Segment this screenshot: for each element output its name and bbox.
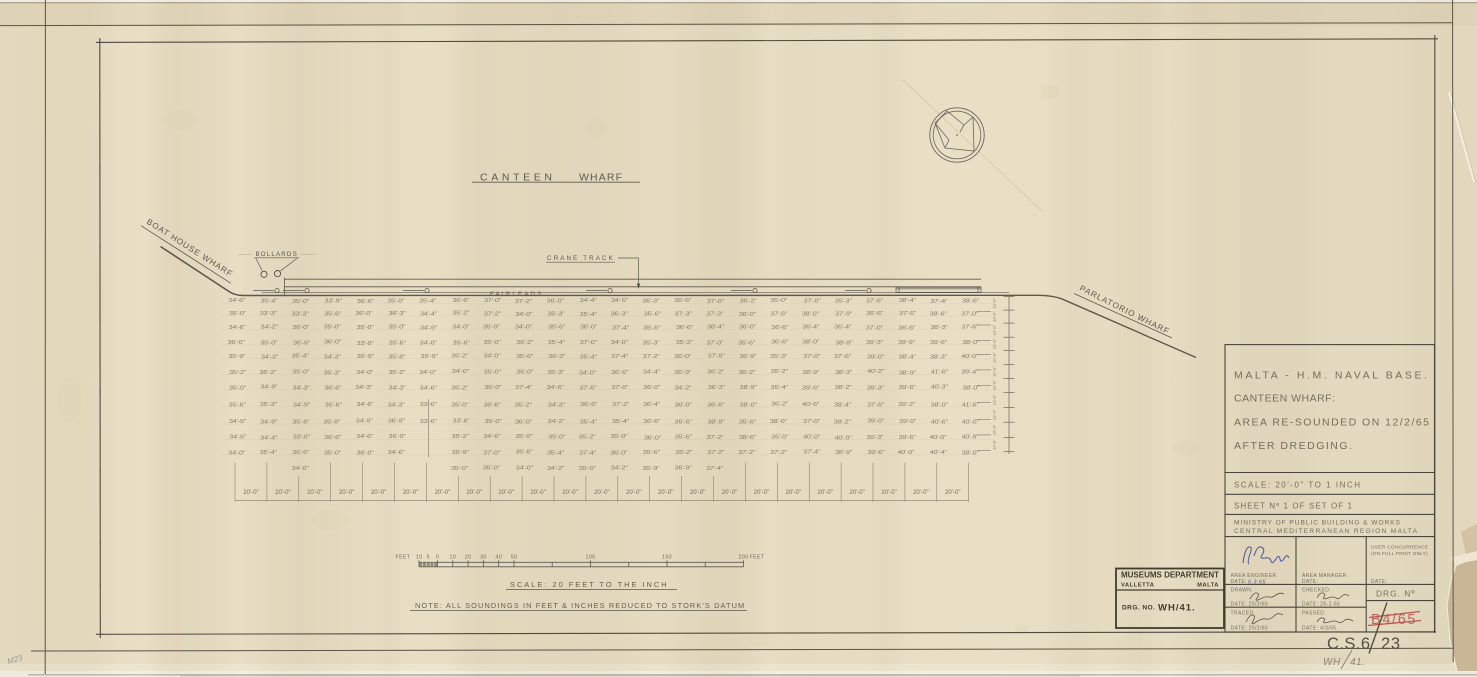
svg-text:5: 5	[427, 555, 430, 561]
svg-text:35'-6": 35'-6"	[644, 312, 661, 318]
svg-text:38'-4": 38'-4"	[707, 325, 724, 331]
svg-text:36'-3": 36'-3"	[548, 354, 565, 360]
svg-text:35'-3": 35'-3"	[547, 370, 564, 376]
svg-text:37'-2": 37'-2"	[770, 450, 787, 456]
svg-text:35'-0": 35'-0"	[357, 325, 374, 331]
svg-text:DATE:: DATE:	[1302, 579, 1318, 585]
svg-text:39'-6": 39'-6"	[899, 385, 916, 391]
svg-text:10'-0": 10'-0"	[992, 394, 997, 405]
svg-text:34'-2": 34'-2"	[261, 324, 278, 330]
svg-text:36'-0": 36'-0"	[675, 402, 692, 408]
svg-text:36'-0": 36'-0"	[292, 325, 309, 331]
svg-text:36'-0": 36'-0"	[228, 340, 245, 346]
svg-text:35'-6": 35'-6"	[739, 420, 756, 426]
svg-text:35'-4": 35'-4"	[548, 340, 565, 346]
svg-text:VALLETTA: VALLETTA	[1121, 583, 1155, 589]
svg-text:36'-6": 36'-6"	[643, 419, 660, 425]
svg-text:37'-3": 37'-3"	[706, 311, 723, 317]
svg-text:33'-0": 33'-0"	[293, 435, 310, 441]
svg-text:34'-6": 34'-6"	[388, 450, 405, 456]
svg-text:35'-2": 35'-2"	[675, 450, 692, 456]
svg-text:34'-3": 34'-3"	[388, 403, 405, 409]
svg-text:34'-0": 34'-0"	[292, 466, 309, 472]
svg-text:36'-3": 36'-3"	[389, 311, 406, 317]
svg-text:35'-4": 35'-4"	[261, 299, 278, 305]
svg-text:34'-6": 34'-6"	[483, 434, 500, 440]
svg-text:20'-0": 20'-0"	[498, 489, 514, 496]
svg-text:37'-9": 37'-9"	[708, 354, 725, 360]
svg-text:35'-9": 35'-9"	[452, 450, 469, 456]
svg-text:20'-0": 20'-0"	[530, 489, 546, 496]
svg-text:37'-6": 37'-6"	[899, 311, 916, 317]
svg-text:20'-0": 20'-0"	[722, 489, 738, 496]
svg-text:35'-6": 35'-6"	[675, 435, 692, 441]
svg-text:35'-6": 35'-6"	[548, 325, 565, 331]
svg-text:36'-4": 36'-4"	[643, 402, 660, 408]
svg-text:38'-4": 38'-4"	[899, 298, 916, 304]
svg-text:34'-0": 34'-0"	[420, 341, 437, 347]
svg-text:DATE:: DATE:	[1231, 579, 1247, 585]
svg-text:10'-0": 10'-0"	[992, 424, 997, 435]
svg-text:10'-0": 10'-0"	[992, 366, 997, 377]
svg-text:38'-3": 38'-3"	[835, 370, 852, 376]
svg-text:36'-0": 36'-0"	[644, 435, 661, 441]
svg-text:35'-2": 35'-2"	[771, 369, 788, 375]
svg-text:37'-0": 37'-0"	[706, 340, 723, 346]
svg-text:35'-6": 35'-6"	[643, 325, 660, 331]
svg-text:DATE: 25/2/65: DATE: 25/2/65	[1231, 602, 1269, 608]
svg-text:33'-3": 33'-3"	[292, 312, 309, 318]
svg-text:36'-6": 36'-6"	[707, 403, 724, 409]
svg-text:36'-2": 36'-2"	[738, 370, 755, 376]
svg-text:35'-4": 35'-4"	[612, 419, 629, 425]
svg-text:34'-0": 34'-0"	[228, 451, 245, 457]
svg-text:34'-4": 34'-4"	[260, 435, 277, 441]
svg-text:34'-0": 34'-0"	[611, 340, 628, 346]
svg-text:36'-2": 36'-2"	[516, 340, 533, 346]
svg-text:20'-0": 20'-0"	[594, 489, 610, 496]
svg-text:37'-9": 37'-9"	[835, 312, 852, 318]
svg-text:10'-0": 10'-0"	[992, 297, 997, 308]
svg-text:35'-3": 35'-3"	[770, 354, 787, 360]
svg-text:37'-6": 37'-6"	[834, 354, 851, 360]
svg-text:34'-3": 34'-3"	[261, 355, 278, 361]
svg-text:38'-0": 38'-0"	[963, 386, 980, 392]
svg-text:34'-6": 34'-6"	[229, 435, 246, 441]
svg-text:36'-6": 36'-6"	[292, 450, 309, 456]
svg-text:36'-0": 36'-0"	[643, 385, 660, 391]
svg-text:38'-9": 38'-9"	[740, 385, 757, 391]
svg-text:35'-2": 35'-2"	[452, 311, 469, 317]
svg-text:37'-0": 37'-0"	[866, 325, 883, 331]
svg-text:33'-6": 33'-6"	[453, 419, 470, 425]
svg-text:CHECKED.: CHECKED.	[1302, 588, 1331, 594]
svg-text:35'-4": 35'-4"	[292, 354, 309, 360]
svg-text:34'-2": 34'-2"	[611, 465, 628, 471]
svg-text:10'-0": 10'-0"	[992, 409, 997, 420]
svg-text:20: 20	[465, 555, 472, 561]
svg-text:30: 30	[480, 555, 487, 561]
svg-text:39'-6": 39'-6"	[802, 386, 819, 392]
svg-text:36'-0": 36'-0"	[484, 385, 501, 391]
svg-text:35'-4": 35'-4"	[580, 355, 597, 361]
svg-text:36'-6": 36'-6"	[484, 403, 501, 409]
svg-text:36'-6": 36'-6"	[357, 299, 374, 305]
svg-text:39'-0": 39'-0"	[899, 419, 916, 425]
svg-text:FEET: FEET	[396, 555, 411, 561]
svg-text:38'-0": 38'-0"	[931, 403, 948, 409]
svg-text:35'-0": 35'-0"	[485, 419, 502, 425]
svg-text:35'-0": 35'-0"	[484, 369, 501, 375]
svg-text:38'-6": 38'-6"	[930, 312, 947, 318]
svg-text:20'-0": 20'-0"	[754, 489, 770, 496]
svg-text:37'-6": 37'-6"	[961, 324, 978, 330]
svg-text:34'-6": 34'-6"	[611, 298, 628, 304]
svg-text:35'-0": 35'-0"	[260, 340, 277, 346]
svg-text:35'-2": 35'-2"	[452, 434, 469, 440]
svg-text:36'-6": 36'-6"	[452, 298, 469, 304]
svg-text:35'-9": 35'-9"	[483, 325, 500, 331]
svg-text:36'-0": 36'-0"	[324, 340, 341, 346]
svg-text:37'-2": 37'-2"	[515, 299, 532, 305]
svg-text:34'-0": 34'-0"	[515, 324, 532, 330]
svg-text:20'-0": 20'-0"	[658, 489, 674, 496]
svg-text:35'-4": 35'-4"	[580, 312, 597, 318]
svg-text:36'-0": 36'-0"	[355, 311, 372, 317]
svg-text:35'-3": 35'-3"	[548, 311, 565, 317]
svg-text:35'-0": 35'-0"	[388, 324, 405, 330]
svg-text:DATE: 25/2/65: DATE: 25/2/65	[1231, 626, 1269, 632]
svg-text:36'-0": 36'-0"	[739, 312, 756, 318]
svg-text:36'-3": 36'-3"	[611, 312, 628, 318]
svg-text:35'-2": 35'-2"	[388, 370, 405, 376]
svg-text:37'-2": 37'-2"	[707, 450, 724, 456]
svg-text:AREA MANAGER: AREA MANAGER	[1302, 573, 1347, 579]
svg-text:35'-0": 35'-0"	[324, 324, 341, 330]
svg-text:38'-2": 38'-2"	[834, 419, 851, 425]
svg-text:37'-2": 37'-2"	[707, 435, 724, 441]
svg-text:35'-6": 35'-6"	[388, 354, 405, 360]
svg-text:36'-2": 36'-2"	[260, 370, 277, 376]
svg-text:37'-0": 37'-0"	[707, 299, 724, 305]
svg-text:34'-0": 34'-0"	[356, 370, 373, 376]
svg-text:40'-3": 40'-3"	[931, 385, 948, 391]
svg-text:37'-4": 37'-4"	[612, 325, 629, 331]
svg-text:37'-0": 37'-0"	[484, 298, 501, 304]
svg-text:SCALE: 20'-0" TO 1 INCH: SCALE: 20'-0" TO 1 INCH	[1234, 481, 1360, 490]
svg-text:35'-3": 35'-3"	[835, 298, 852, 304]
svg-text:39'-0": 39'-0"	[867, 354, 884, 360]
svg-text:20'-0": 20'-0"	[307, 489, 323, 496]
svg-text:34'-6": 34'-6"	[420, 385, 437, 391]
svg-text:35'-2": 35'-2"	[451, 354, 468, 360]
svg-text:36'-2": 36'-2"	[707, 369, 724, 375]
svg-text:35'-3": 35'-3"	[643, 341, 660, 347]
svg-text:35'-4": 35'-4"	[260, 450, 277, 456]
svg-text:35'-0": 35'-0"	[515, 434, 532, 440]
svg-text:38'-0": 38'-0"	[802, 340, 819, 346]
svg-text:37'-2": 37'-2"	[738, 450, 755, 456]
svg-text:34'-9": 34'-9"	[261, 385, 278, 391]
svg-text:35'-0": 35'-0"	[387, 299, 404, 305]
svg-text:36'-9": 36'-9"	[739, 354, 756, 360]
svg-text:37'-0": 37'-0"	[961, 312, 978, 318]
svg-text:36'-4": 36'-4"	[834, 324, 851, 330]
svg-text:36'-6": 36'-6"	[324, 386, 341, 392]
svg-text:MALTA - H.M. NAVAL BASE.: MALTA - H.M. NAVAL BASE.	[1234, 370, 1427, 382]
svg-text:38'-3": 38'-3"	[931, 325, 948, 331]
svg-text:36'-6": 36'-6"	[771, 325, 788, 331]
svg-text:150: 150	[662, 555, 672, 561]
svg-text:20'-0": 20'-0"	[817, 489, 833, 496]
svg-text:40'-0": 40'-0"	[803, 434, 820, 440]
svg-text:35'-0": 35'-0"	[451, 403, 468, 409]
svg-text:39'-6": 39'-6"	[930, 340, 947, 346]
svg-text:PASSED.: PASSED.	[1302, 611, 1326, 617]
svg-text:40'-0": 40'-0"	[961, 354, 978, 360]
svg-text:34'-0": 34'-0"	[484, 354, 501, 360]
svg-text:WH: WH	[1323, 657, 1341, 668]
svg-text:37'-4": 37'-4"	[930, 299, 947, 305]
svg-text:36'-0": 36'-0"	[580, 324, 597, 330]
svg-text:40'-6": 40'-6"	[931, 419, 948, 425]
svg-text:NOTE: ALL SOUNDINGS IN FEET &: NOTE: ALL SOUNDINGS IN FEET & INCHES RED…	[415, 601, 745, 610]
svg-text:20'-0": 20'-0"	[690, 489, 706, 496]
svg-text:AFTER DREDGING.: AFTER DREDGING.	[1234, 440, 1352, 452]
svg-text:35'-3": 35'-3"	[324, 370, 341, 376]
svg-text:SHEET Nº 1 OF SET OF 1: SHEET Nº 1 OF SET OF 1	[1234, 502, 1353, 511]
svg-text:37'-2": 37'-2"	[643, 354, 660, 360]
svg-text:10'-0": 10'-0"	[992, 324, 997, 335]
svg-text:37'-0": 37'-0"	[803, 354, 820, 360]
svg-text:DRAWN,: DRAWN,	[1231, 588, 1254, 594]
svg-text:36'-4": 36'-4"	[802, 325, 819, 331]
svg-text:34'-0": 34'-0"	[452, 369, 469, 375]
svg-text:39'-2": 39'-2"	[898, 402, 915, 408]
svg-text:35'-6": 35'-6"	[453, 341, 470, 347]
svg-text:38'-4": 38'-4"	[899, 355, 916, 361]
svg-text:34'-3": 34'-3"	[355, 385, 372, 391]
svg-text:35'-0": 35'-0"	[548, 435, 565, 441]
svg-text:34'-9": 34'-9"	[293, 402, 310, 408]
svg-text:34'-0": 34'-0"	[515, 312, 532, 318]
svg-text:6.3.65: 6.3.65	[1248, 579, 1266, 585]
svg-text:35'-0": 35'-0"	[324, 450, 341, 456]
svg-text:35'-6": 35'-6"	[389, 340, 406, 346]
svg-text:20'-0": 20'-0"	[562, 489, 578, 496]
svg-text:WH/41.: WH/41.	[1158, 603, 1196, 614]
svg-text:34'-2": 34'-2"	[548, 419, 565, 425]
svg-text:37'-2": 37'-2"	[484, 311, 501, 317]
svg-text:C.S.6: C.S.6	[1327, 635, 1371, 653]
svg-text:35'-9": 35'-9"	[323, 419, 340, 425]
svg-text:38'-9": 38'-9"	[899, 370, 916, 376]
svg-text:37'-0": 37'-0"	[611, 385, 628, 391]
svg-text:SCALE: 20 FEET TO THE INCH: SCALE: 20 FEET TO THE INCH	[510, 580, 668, 589]
svg-text:35'-2": 35'-2"	[515, 403, 532, 409]
svg-text:20'-0": 20'-0"	[339, 489, 355, 496]
svg-text:37'-6": 37'-6"	[770, 311, 787, 317]
svg-text:35'-9": 35'-9"	[643, 466, 660, 472]
svg-text:37'-2": 37'-2"	[612, 402, 629, 408]
svg-text:34'-6": 34'-6"	[229, 325, 246, 331]
svg-text:36'-9": 36'-9"	[388, 419, 405, 425]
svg-text:37'-6": 37'-6"	[867, 403, 884, 409]
svg-text:38'-0": 38'-0"	[740, 403, 757, 409]
svg-text:36'-6": 36'-6"	[866, 311, 883, 317]
svg-text:20'-0": 20'-0"	[275, 489, 291, 496]
svg-text:40'-0": 40'-0"	[930, 435, 947, 441]
svg-text:35'-2": 35'-2"	[579, 434, 596, 440]
svg-text:DATE: 4/3/65.: DATE: 4/3/65.	[1302, 626, 1338, 632]
svg-text:20'-0": 20'-0"	[403, 489, 419, 496]
svg-text:35'-0": 35'-0"	[229, 311, 246, 317]
svg-text:35'-0": 35'-0"	[292, 370, 309, 376]
svg-text:35'-9": 35'-9"	[421, 354, 438, 360]
svg-text:CANTEEN: CANTEEN	[480, 171, 556, 183]
svg-text:20'-0": 20'-0"	[371, 489, 387, 496]
svg-text:35'-2": 35'-2"	[676, 340, 693, 346]
svg-text:36'-6": 36'-6"	[674, 298, 691, 304]
svg-text:35'-0": 35'-0"	[771, 434, 788, 440]
svg-text:33'-3": 33'-3"	[260, 311, 277, 317]
svg-text:39'-9": 39'-9"	[898, 340, 915, 346]
svg-text:35'-6": 35'-6"	[516, 450, 533, 456]
svg-text:38'-6": 38'-6"	[962, 299, 979, 305]
svg-text:35'-0": 35'-0"	[579, 466, 596, 472]
svg-text:34'-9": 34'-9"	[356, 419, 373, 425]
svg-text:36'-9": 36'-9"	[674, 370, 691, 376]
svg-text:34'-0": 34'-0"	[419, 370, 436, 376]
svg-text:35'-0": 35'-0"	[229, 386, 246, 392]
svg-text:MINISTRY OF PUBLIC BUILDING: MINISTRY OF PUBLIC BUILDING & WORKS	[1234, 520, 1401, 527]
svg-text:38'-4": 38'-4"	[834, 403, 851, 409]
svg-text:BOLLARDS: BOLLARDS	[256, 251, 298, 258]
svg-text:50: 50	[511, 555, 518, 561]
svg-text:35'-6": 35'-6"	[229, 402, 246, 408]
svg-text:20'-0": 20'-0"	[626, 489, 642, 496]
svg-text:23: 23	[1381, 635, 1401, 653]
svg-text:(ON FULL PRINT ONLY): (ON FULL PRINT ONLY)	[1371, 551, 1428, 557]
svg-text:20'-0": 20'-0"	[849, 489, 865, 496]
svg-text:35'-2": 35'-2"	[451, 386, 468, 392]
svg-text:37'-4": 37'-4"	[579, 451, 596, 457]
svg-text:36'-9": 36'-9"	[675, 465, 692, 471]
svg-text:35'-0": 35'-0"	[292, 299, 309, 305]
svg-text:36'-3": 36'-3"	[642, 299, 659, 305]
svg-text:100: 100	[586, 555, 596, 561]
svg-text:38'-2": 38'-2"	[835, 385, 852, 391]
svg-text:38'-0": 38'-0"	[770, 419, 787, 425]
svg-text:MUSEUMS DEPARTMENT: MUSEUMS DEPARTMENT	[1121, 571, 1219, 580]
svg-text:37'-4": 37'-4"	[803, 450, 820, 456]
svg-text:37'-6": 37'-6"	[866, 298, 883, 304]
svg-text:41.: 41.	[1350, 657, 1365, 668]
svg-text:34'-3": 34'-3"	[293, 385, 310, 391]
svg-text:41'-6": 41'-6"	[962, 403, 979, 409]
svg-text:35'-4": 35'-4"	[419, 299, 436, 305]
svg-text:36'-6": 36'-6"	[293, 341, 310, 347]
svg-text:36'-0": 36'-0"	[515, 419, 532, 425]
svg-text:35'-6": 35'-6"	[643, 450, 660, 456]
svg-text:10'-0": 10'-0"	[992, 311, 997, 322]
svg-text:39'-3": 39'-3"	[867, 386, 884, 392]
svg-text:37'-3": 37'-3"	[675, 312, 692, 318]
svg-text:36'-6": 36'-6"	[898, 325, 915, 331]
svg-text:37'-6": 37'-6"	[579, 385, 596, 391]
svg-text:34'-2": 34'-2"	[547, 466, 564, 472]
svg-text:41'-6": 41'-6"	[931, 370, 948, 376]
svg-text:37'-4": 37'-4"	[706, 466, 723, 472]
svg-text:36'-6": 36'-6"	[325, 402, 342, 408]
svg-text:20'-0": 20'-0"	[786, 489, 802, 496]
svg-text:38'-9": 38'-9"	[802, 370, 819, 376]
svg-text:40'-4": 40'-4"	[930, 450, 947, 456]
svg-text:36'-0": 36'-0"	[516, 370, 533, 376]
svg-text:37'-4": 37'-4"	[515, 385, 532, 391]
svg-text:20'-0": 20'-0"	[435, 489, 451, 496]
svg-text:37'-0": 37'-0"	[804, 299, 821, 305]
svg-text:35'-0": 35'-0"	[770, 298, 787, 304]
svg-text:34'-2": 34'-2"	[674, 385, 691, 391]
svg-text:FAIRLEADS: FAIRLEADS	[490, 291, 542, 297]
svg-text:36'-6": 36'-6"	[676, 325, 693, 331]
svg-text:10: 10	[416, 555, 423, 561]
svg-text:10'-0": 10'-0"	[992, 338, 997, 349]
svg-text:40'-9": 40'-9"	[962, 434, 979, 440]
svg-text:CRANE TRACK: CRANE TRACK	[547, 255, 614, 262]
svg-text:35'-0": 35'-0"	[451, 466, 468, 472]
svg-text:35'-0": 35'-0"	[484, 340, 501, 346]
svg-text:34'-4": 34'-4"	[643, 369, 660, 375]
svg-text:DATE:: DATE:	[1371, 579, 1387, 585]
svg-text:38'-6": 38'-6"	[739, 435, 756, 441]
svg-text:CANTEEN WHARF:: CANTEEN WHARF:	[1234, 393, 1335, 405]
svg-text:34'-9": 34'-9"	[420, 325, 437, 331]
svg-text:34'-4": 34'-4"	[580, 298, 597, 304]
svg-text:38'-0": 38'-0"	[802, 312, 819, 318]
svg-text:37'-4": 37'-4"	[611, 354, 628, 360]
svg-text:34'-4": 34'-4"	[420, 311, 437, 317]
svg-text:36'-0": 36'-0"	[357, 451, 374, 457]
svg-text:34'-6": 34'-6"	[547, 385, 564, 391]
svg-text:40'-0": 40'-0"	[898, 450, 915, 456]
svg-text:40'-6": 40'-6"	[802, 402, 819, 408]
svg-text:10'-0": 10'-0"	[992, 439, 997, 450]
svg-text:36'-0": 36'-0"	[610, 451, 627, 457]
svg-text:33'-9": 33'-9"	[325, 299, 342, 305]
svg-text:38'-9": 38'-9"	[708, 419, 725, 425]
svg-text:34'-6": 34'-6"	[357, 402, 374, 408]
svg-text:37'-0": 37'-0"	[580, 340, 597, 346]
svg-text:34'-9": 34'-9"	[229, 419, 246, 425]
svg-text:CENTRAL MEDITERRANEAN REGION: CENTRAL MEDITERRANEAN REGION MALTA	[1234, 528, 1418, 535]
svg-text:39'-6": 39'-6"	[899, 435, 916, 441]
svg-text:39'-3": 39'-3"	[866, 340, 883, 346]
svg-text:DRG. NO.: DRG. NO.	[1122, 605, 1155, 612]
svg-text:40'-2": 40'-2"	[867, 369, 884, 375]
svg-text:35'-2": 35'-2"	[229, 370, 246, 376]
svg-text:34'-6": 34'-6"	[356, 434, 373, 440]
svg-text:35'-9": 35'-9"	[228, 354, 245, 360]
svg-text:DATE: 26-2-65: DATE: 26-2-65	[1302, 602, 1340, 608]
svg-text:36'-2": 36'-2"	[771, 402, 788, 408]
svg-text:39'-6": 39'-6"	[867, 450, 884, 456]
svg-text:35'-9": 35'-9"	[357, 354, 374, 360]
svg-text:10: 10	[449, 555, 456, 561]
svg-text:35'-3": 35'-3"	[260, 402, 277, 408]
svg-text:40: 40	[495, 555, 502, 561]
